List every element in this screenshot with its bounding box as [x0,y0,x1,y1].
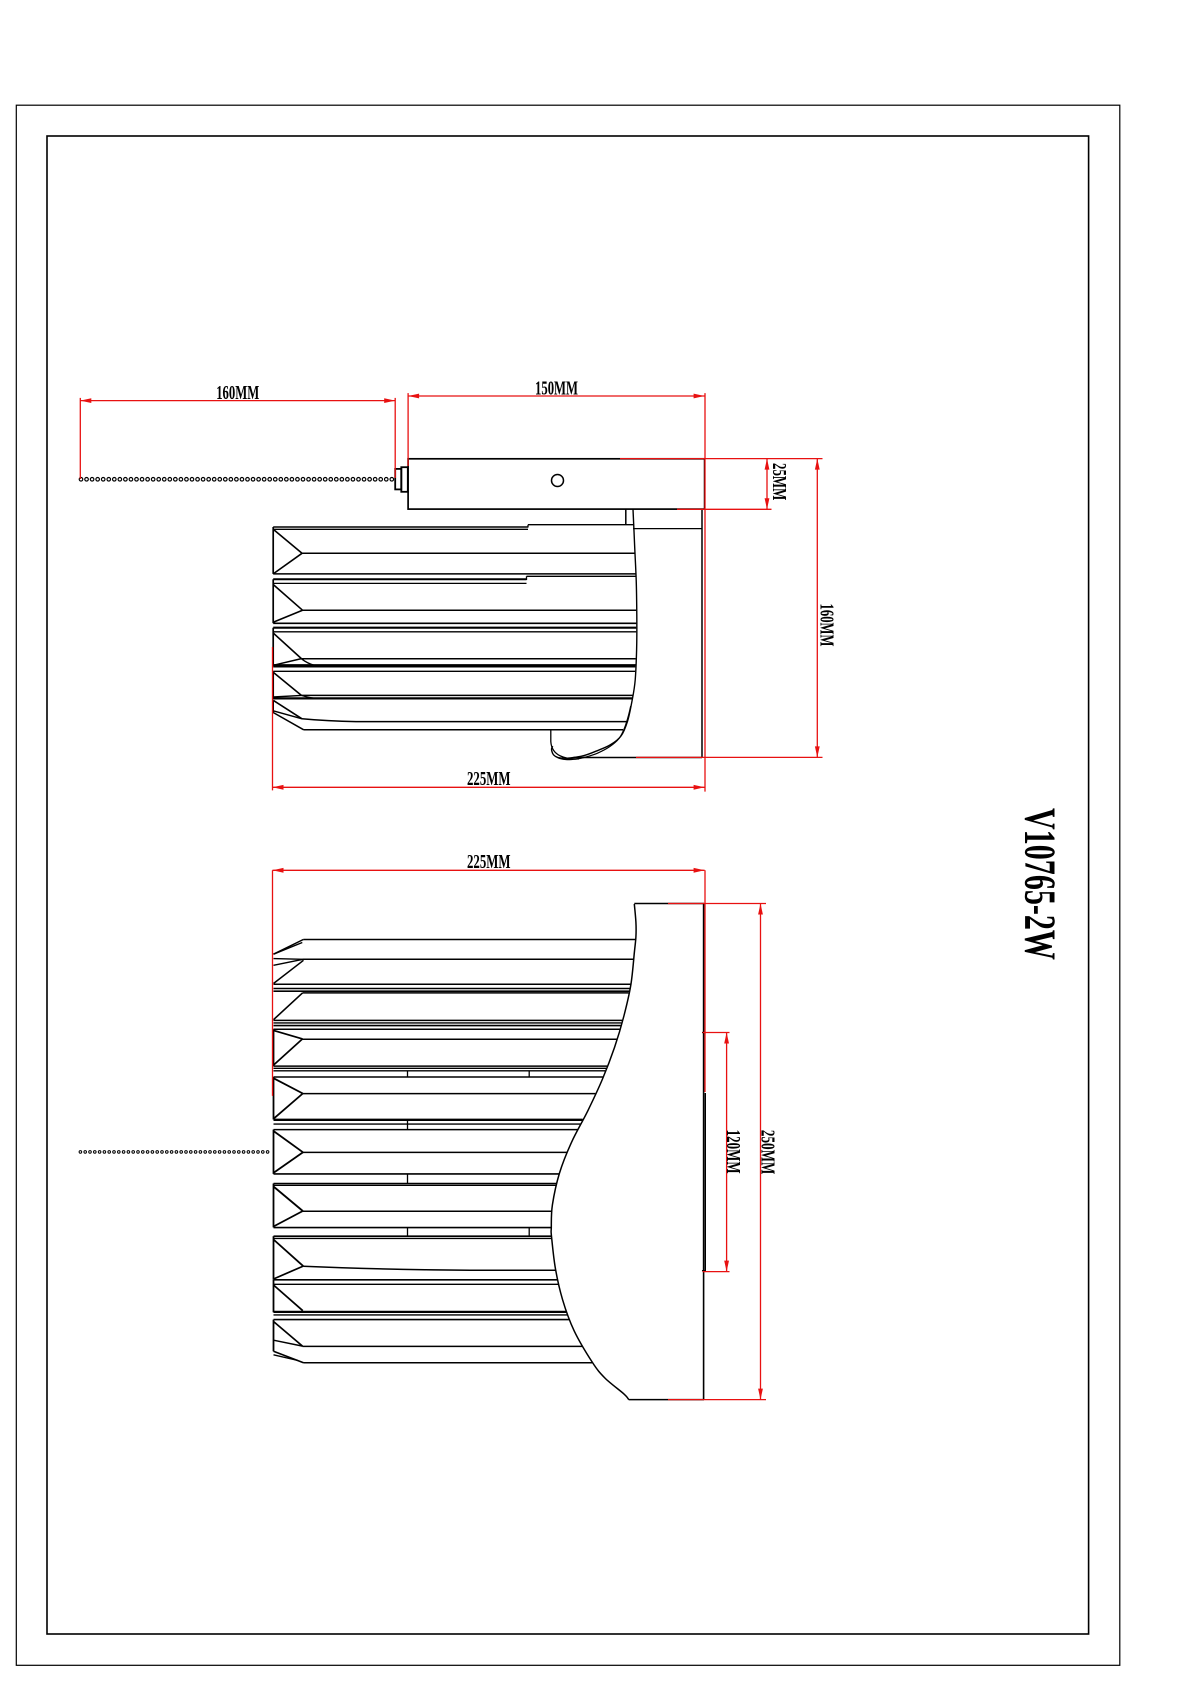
svg-text:225MM: 225MM [467,851,511,873]
svg-text:V10765-2W: V10765-2W [1016,808,1065,960]
svg-text:25MM: 25MM [768,463,790,500]
svg-text:250MM: 250MM [757,1130,779,1175]
svg-text:120MM: 120MM [722,1130,744,1174]
svg-text:225MM: 225MM [467,768,511,790]
svg-text:160MM: 160MM [216,382,259,404]
svg-text:160MM: 160MM [815,604,837,647]
svg-text:150MM: 150MM [535,378,578,400]
